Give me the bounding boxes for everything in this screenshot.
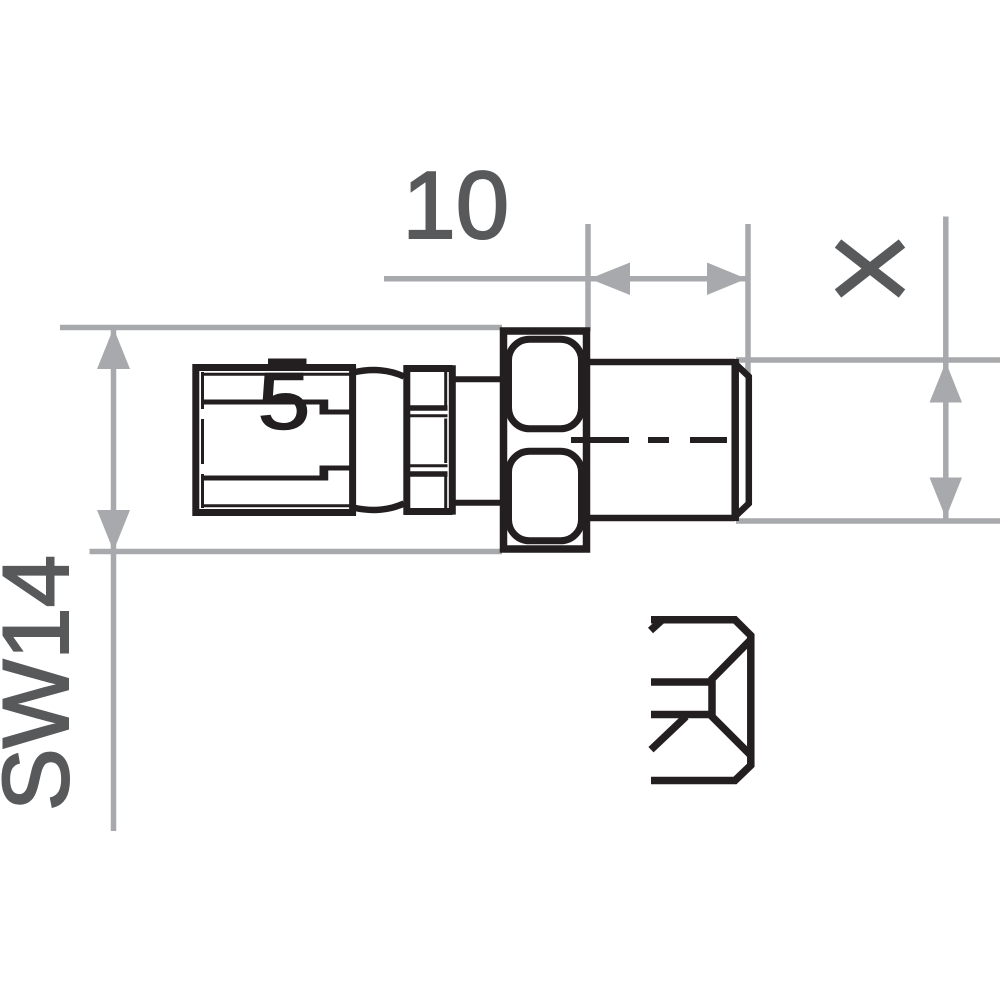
svg-text:SW14: SW14 bbox=[0, 555, 88, 811]
svg-text:5: 5 bbox=[258, 356, 310, 446]
svg-text:10: 10 bbox=[402, 152, 509, 259]
